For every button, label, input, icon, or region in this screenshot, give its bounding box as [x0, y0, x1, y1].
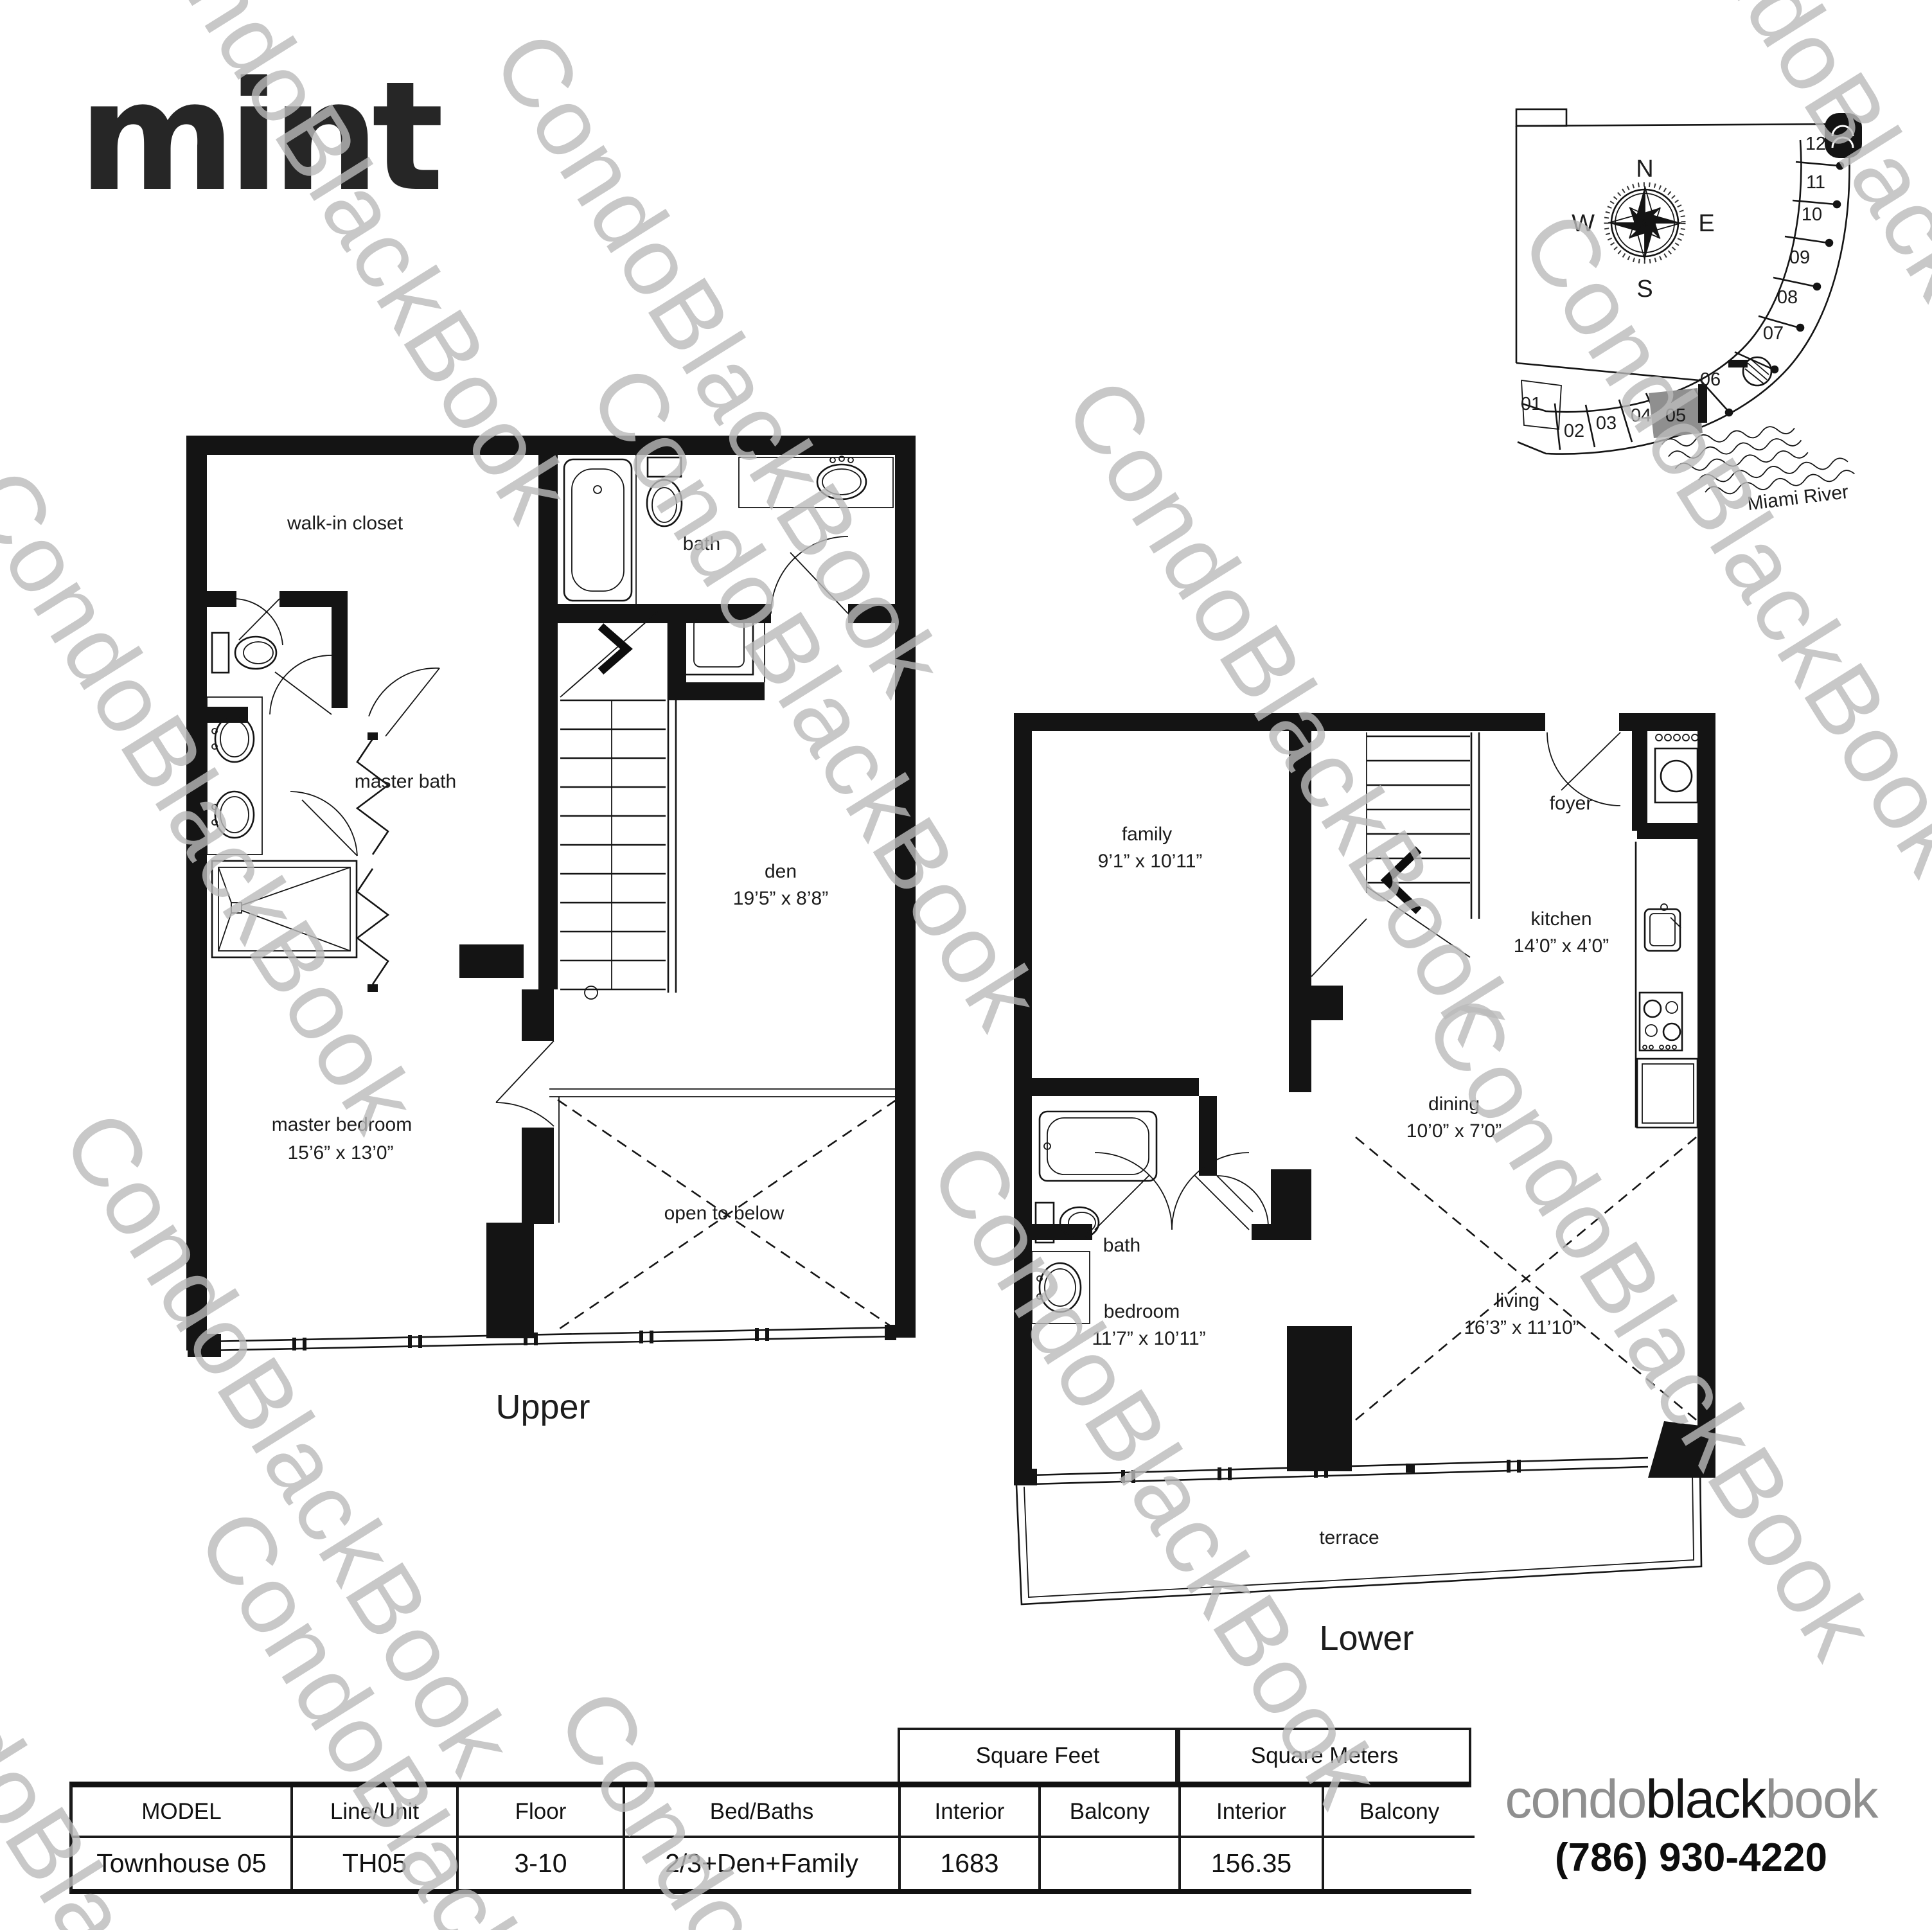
keyplan-unit-09: 09	[1789, 247, 1810, 268]
upper-bath-label: bath	[683, 533, 720, 554]
compass-n: N	[1636, 155, 1653, 182]
master-bath-label: master bath	[355, 771, 456, 792]
upper-title: Upper	[495, 1388, 590, 1426]
upper-toilet-icon	[212, 633, 276, 673]
phone-number: (786) 930-4220	[1476, 1835, 1906, 1881]
floorplan-drawing: walk-in closet bath master bath den 19’5…	[0, 0, 1932, 1930]
miami-river-label: Miami River	[1746, 481, 1850, 515]
compass-icon	[1606, 184, 1683, 261]
mint-logo: mint	[78, 62, 436, 213]
col-header-model: MODEL	[73, 1787, 293, 1838]
logo-part-black: black	[1645, 1769, 1765, 1829]
lower-bath-label: bath	[1103, 1235, 1140, 1256]
walk-in-closet-label: walk-in closet	[287, 513, 403, 534]
cell-sm-interior: 156.35	[1181, 1838, 1324, 1889]
keyplan-unit-01: 01	[1521, 394, 1541, 414]
lower-title: Lower	[1319, 1619, 1414, 1658]
compass-e: E	[1698, 210, 1714, 237]
compass-w: W	[1572, 210, 1595, 237]
logo-part-book: book	[1765, 1769, 1877, 1829]
open-to-below-label: open to below	[664, 1203, 784, 1224]
col-header-sf-balcony: Balcony	[1041, 1787, 1181, 1838]
keyplan-unit-12: 12	[1805, 134, 1826, 154]
keyplan-unit-07: 07	[1763, 323, 1784, 344]
keyplan-unit-05: 05	[1665, 405, 1686, 426]
lower-bath-tub-icon	[1040, 1111, 1157, 1181]
den-label: den	[765, 861, 797, 882]
upper-stairs-icon	[560, 604, 676, 999]
keyplan-unit-04: 04	[1631, 405, 1651, 426]
floorplan-flyer-page: walk-in closet bath master bath den 19’5…	[0, 0, 1932, 1930]
keyplan-unit-11: 11	[1806, 172, 1825, 193]
bedroom-dims: 11’7” x 10’11”	[1092, 1328, 1205, 1349]
lower-washer-icon	[1655, 734, 1698, 802]
cell-sf-interior: 1683	[901, 1838, 1041, 1889]
upper-floor-plan: walk-in closet bath master bath den 19’5…	[186, 436, 916, 1426]
keyplan-unit-08: 08	[1777, 287, 1798, 308]
cell-sf-balcony	[1041, 1838, 1181, 1889]
lower-floor-plan: family 9’1” x 10’11” foyer kitchen 14’0”…	[1014, 713, 1715, 1658]
group-header-square-meters: Square Meters	[1178, 1728, 1471, 1782]
group-header-square-feet: Square Feet	[898, 1728, 1178, 1782]
dining-label: dining	[1428, 1093, 1480, 1115]
family-label: family	[1122, 824, 1172, 845]
living-dims: 16’3” x 11’10”	[1464, 1317, 1579, 1338]
den-dims: 19’5” x 8’8”	[733, 888, 828, 909]
upper-bath-tub-icon	[564, 455, 636, 604]
cell-bed-baths: 2/3+Den+Family	[625, 1838, 901, 1889]
col-header-floor: Floor	[459, 1787, 625, 1838]
keyplan-unit-02: 02	[1564, 421, 1584, 441]
bedroom-label: bedroom	[1104, 1301, 1180, 1322]
living-label: living	[1496, 1290, 1539, 1311]
keyplan-unit-10: 10	[1802, 204, 1822, 225]
col-header-sm-interior: Interior	[1181, 1787, 1324, 1838]
foyer-label: foyer	[1550, 793, 1593, 814]
col-header-sf-interior: Interior	[901, 1787, 1041, 1838]
shower-icon	[212, 861, 357, 957]
logo-part-condo: condo	[1505, 1769, 1645, 1829]
dining-dims: 10’0” x 7’0”	[1406, 1120, 1502, 1142]
kitchen-label: kitchen	[1530, 908, 1591, 930]
spec-table: MODEL Line/Unit Floor Bed/Baths Interior…	[69, 1782, 1471, 1894]
terrace-label: terrace	[1319, 1527, 1379, 1548]
lower-stairs-icon	[1311, 732, 1479, 977]
cell-model: Townhouse 05	[73, 1838, 293, 1889]
cell-sm-balcony	[1324, 1838, 1475, 1889]
keyplan-unit-03: 03	[1596, 413, 1617, 434]
compass-s: S	[1636, 276, 1653, 303]
upper-window-band	[207, 1325, 896, 1353]
col-header-sm-balcony: Balcony	[1324, 1787, 1475, 1838]
cell-line-unit: TH05	[293, 1838, 459, 1889]
keyplan-unit-06: 06	[1700, 369, 1721, 390]
cell-floor: 3-10	[459, 1838, 625, 1889]
keyplan: N E S W 01 02 03 04 05 06 07 08 09 10 11…	[1516, 109, 1862, 524]
upper-bath-sink-icon	[739, 456, 893, 508]
bedroom-double-door-arcs	[1095, 1153, 1249, 1230]
master-bedroom-label: master bedroom	[272, 1114, 412, 1135]
family-dims: 9’1” x 10’11”	[1098, 851, 1203, 872]
lower-bath-sink-icon	[1032, 1252, 1090, 1324]
condoblackbook-logo: condoblackbook	[1476, 1768, 1906, 1830]
living-dashed-x	[1356, 1137, 1696, 1420]
col-header-bed-baths: Bed/Baths	[625, 1787, 901, 1838]
col-header-line-unit: Line/Unit	[293, 1787, 459, 1838]
kitchen-appliances	[1636, 842, 1697, 1128]
master-bedroom-dims: 15’6” x 13’0”	[287, 1142, 393, 1164]
upper-bath-toilet-icon	[647, 457, 682, 526]
kitchen-dims: 14’0” x 4’0”	[1514, 935, 1609, 957]
